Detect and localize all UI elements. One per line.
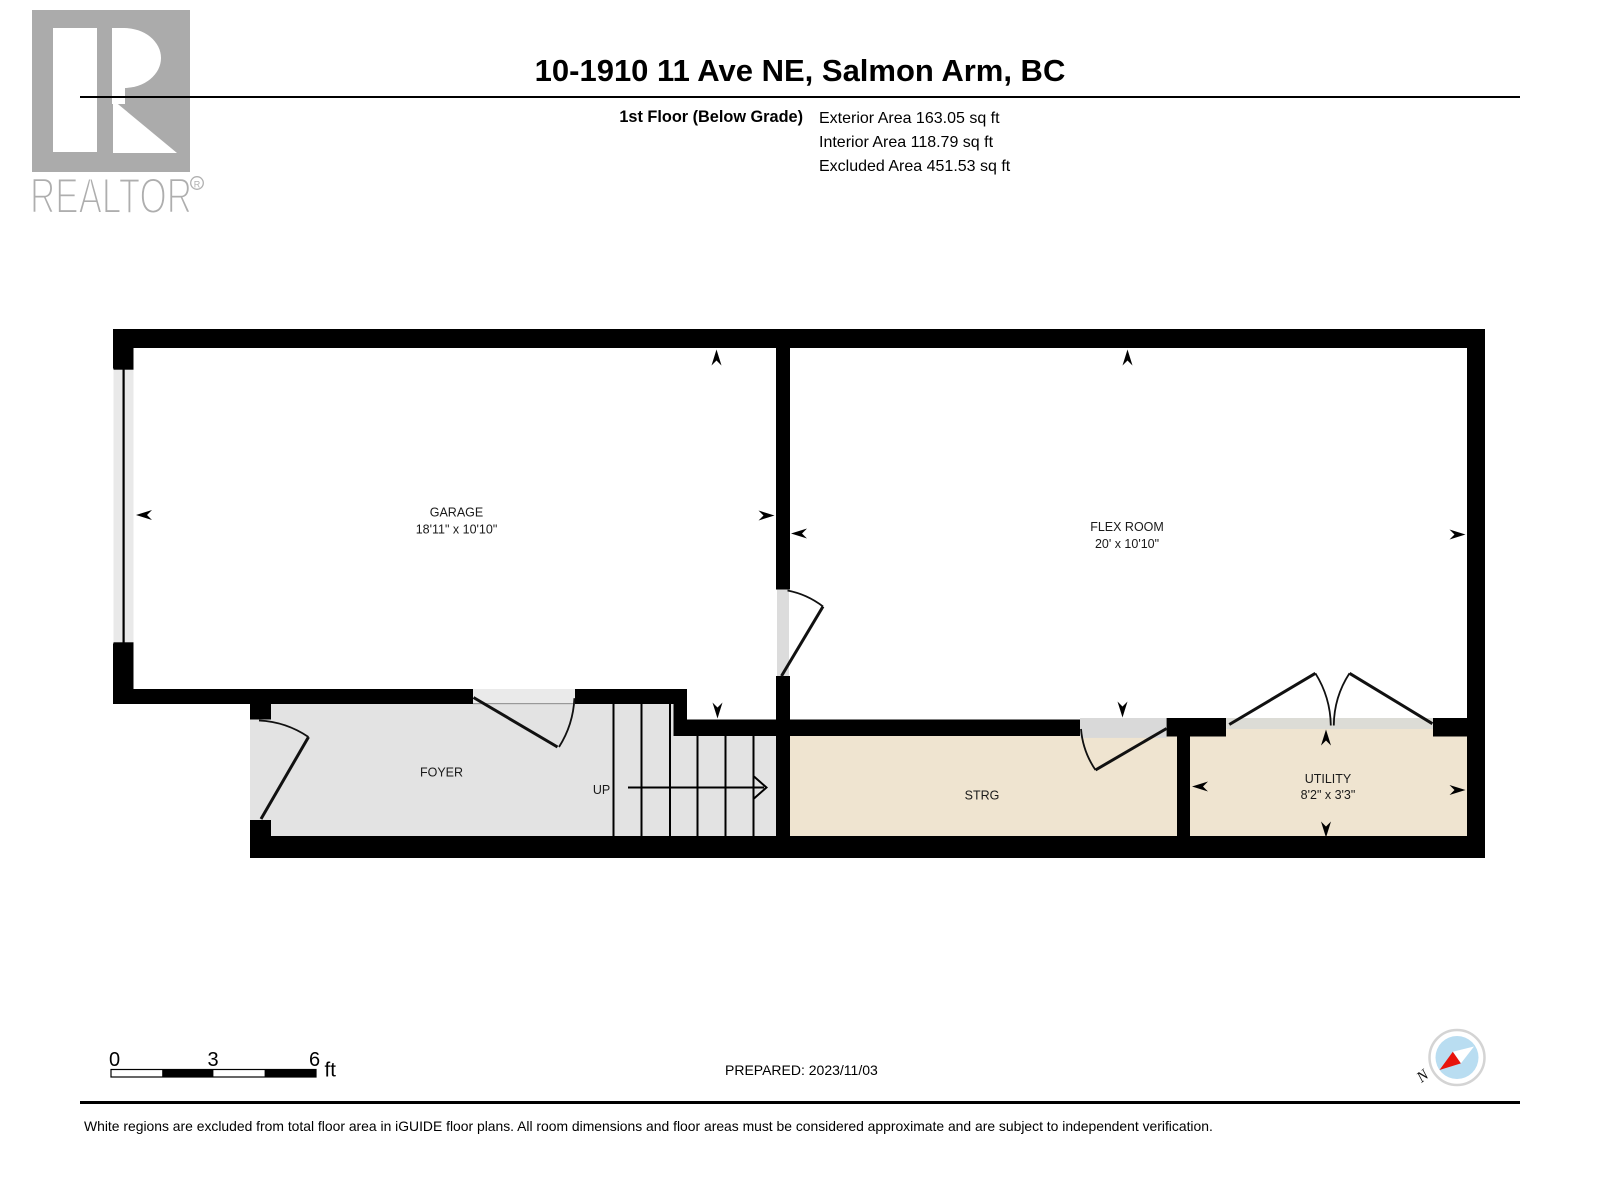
svg-text:N: N [1413,1065,1434,1086]
svg-text:FLEX ROOM: FLEX ROOM [1090,520,1164,534]
svg-text:20' x 10'10": 20' x 10'10" [1095,537,1159,551]
svg-text:18'11" x 10'10": 18'11" x 10'10" [416,523,498,537]
svg-text:0: 0 [109,1049,120,1071]
svg-text:STRG: STRG [965,789,1000,803]
svg-text:UP: UP [593,783,610,797]
svg-text:GARAGE: GARAGE [430,506,484,520]
svg-text:ft: ft [325,1059,337,1082]
svg-text:FOYER: FOYER [420,766,463,780]
svg-text:6: 6 [309,1049,320,1071]
svg-text:8'2" x 3'3": 8'2" x 3'3" [1301,788,1356,802]
svg-text:3: 3 [207,1049,218,1071]
svg-text:UTILITY: UTILITY [1305,772,1352,786]
